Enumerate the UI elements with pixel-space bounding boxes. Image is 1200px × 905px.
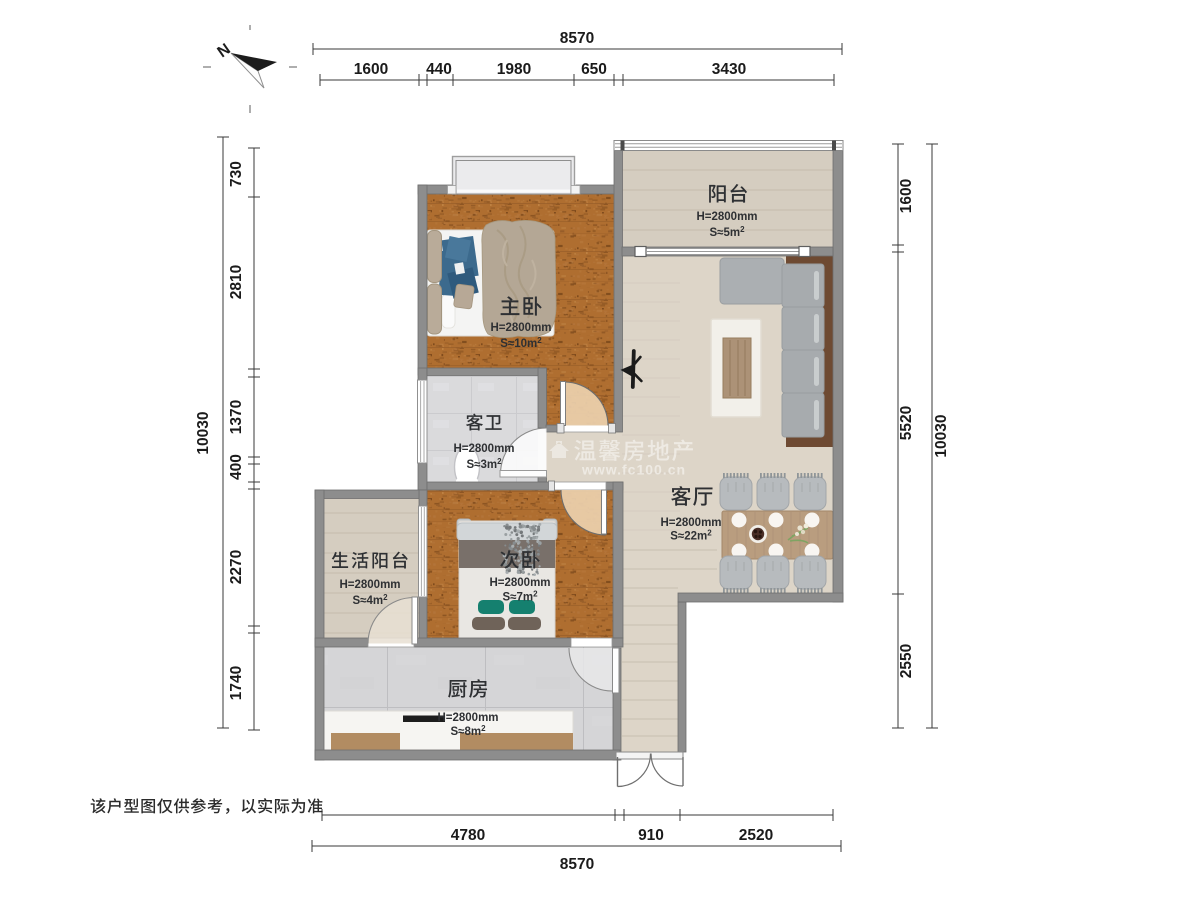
svg-text:1600: 1600: [354, 61, 388, 78]
svg-text:2550: 2550: [898, 644, 915, 678]
svg-text:S≈8m2: S≈8m2: [450, 724, 486, 738]
svg-text:400: 400: [228, 454, 245, 480]
svg-text:4780: 4780: [451, 827, 485, 844]
svg-text:8570: 8570: [560, 856, 594, 873]
svg-text:2270: 2270: [228, 550, 245, 584]
svg-text:S≈3m2: S≈3m2: [466, 457, 502, 471]
svg-text:S≈10m2: S≈10m2: [500, 336, 542, 350]
svg-text:S≈7m2: S≈7m2: [502, 590, 538, 604]
svg-text:1740: 1740: [228, 666, 245, 700]
svg-text:10030: 10030: [933, 414, 950, 457]
svg-text:8570: 8570: [560, 30, 594, 47]
svg-text:1370: 1370: [228, 400, 245, 434]
svg-text:H=2800mm: H=2800mm: [489, 577, 550, 589]
svg-text:S≈22m2: S≈22m2: [670, 529, 712, 543]
svg-text:H=2800mm: H=2800mm: [437, 712, 498, 724]
svg-text:H=2800mm: H=2800mm: [339, 579, 400, 591]
svg-text:5520: 5520: [898, 406, 915, 440]
svg-text:3430: 3430: [712, 61, 746, 78]
svg-text:H=2800mm: H=2800mm: [490, 322, 551, 334]
svg-text:650: 650: [581, 61, 607, 78]
svg-text:H=2800mm: H=2800mm: [453, 443, 514, 455]
svg-text:S≈5m2: S≈5m2: [709, 225, 745, 239]
svg-text:2810: 2810: [228, 265, 245, 299]
svg-text:910: 910: [638, 827, 664, 844]
svg-text:440: 440: [426, 61, 452, 78]
svg-text:H=2800mm: H=2800mm: [696, 211, 757, 223]
svg-text:1980: 1980: [497, 61, 531, 78]
svg-text:S≈4m2: S≈4m2: [352, 593, 388, 607]
svg-text:1600: 1600: [898, 179, 915, 213]
svg-text:10030: 10030: [195, 411, 212, 454]
svg-text:2520: 2520: [739, 827, 773, 844]
svg-text:www.fc100.cn: www.fc100.cn: [581, 462, 686, 478]
svg-text:H=2800mm: H=2800mm: [660, 517, 721, 529]
svg-text:730: 730: [228, 161, 245, 187]
